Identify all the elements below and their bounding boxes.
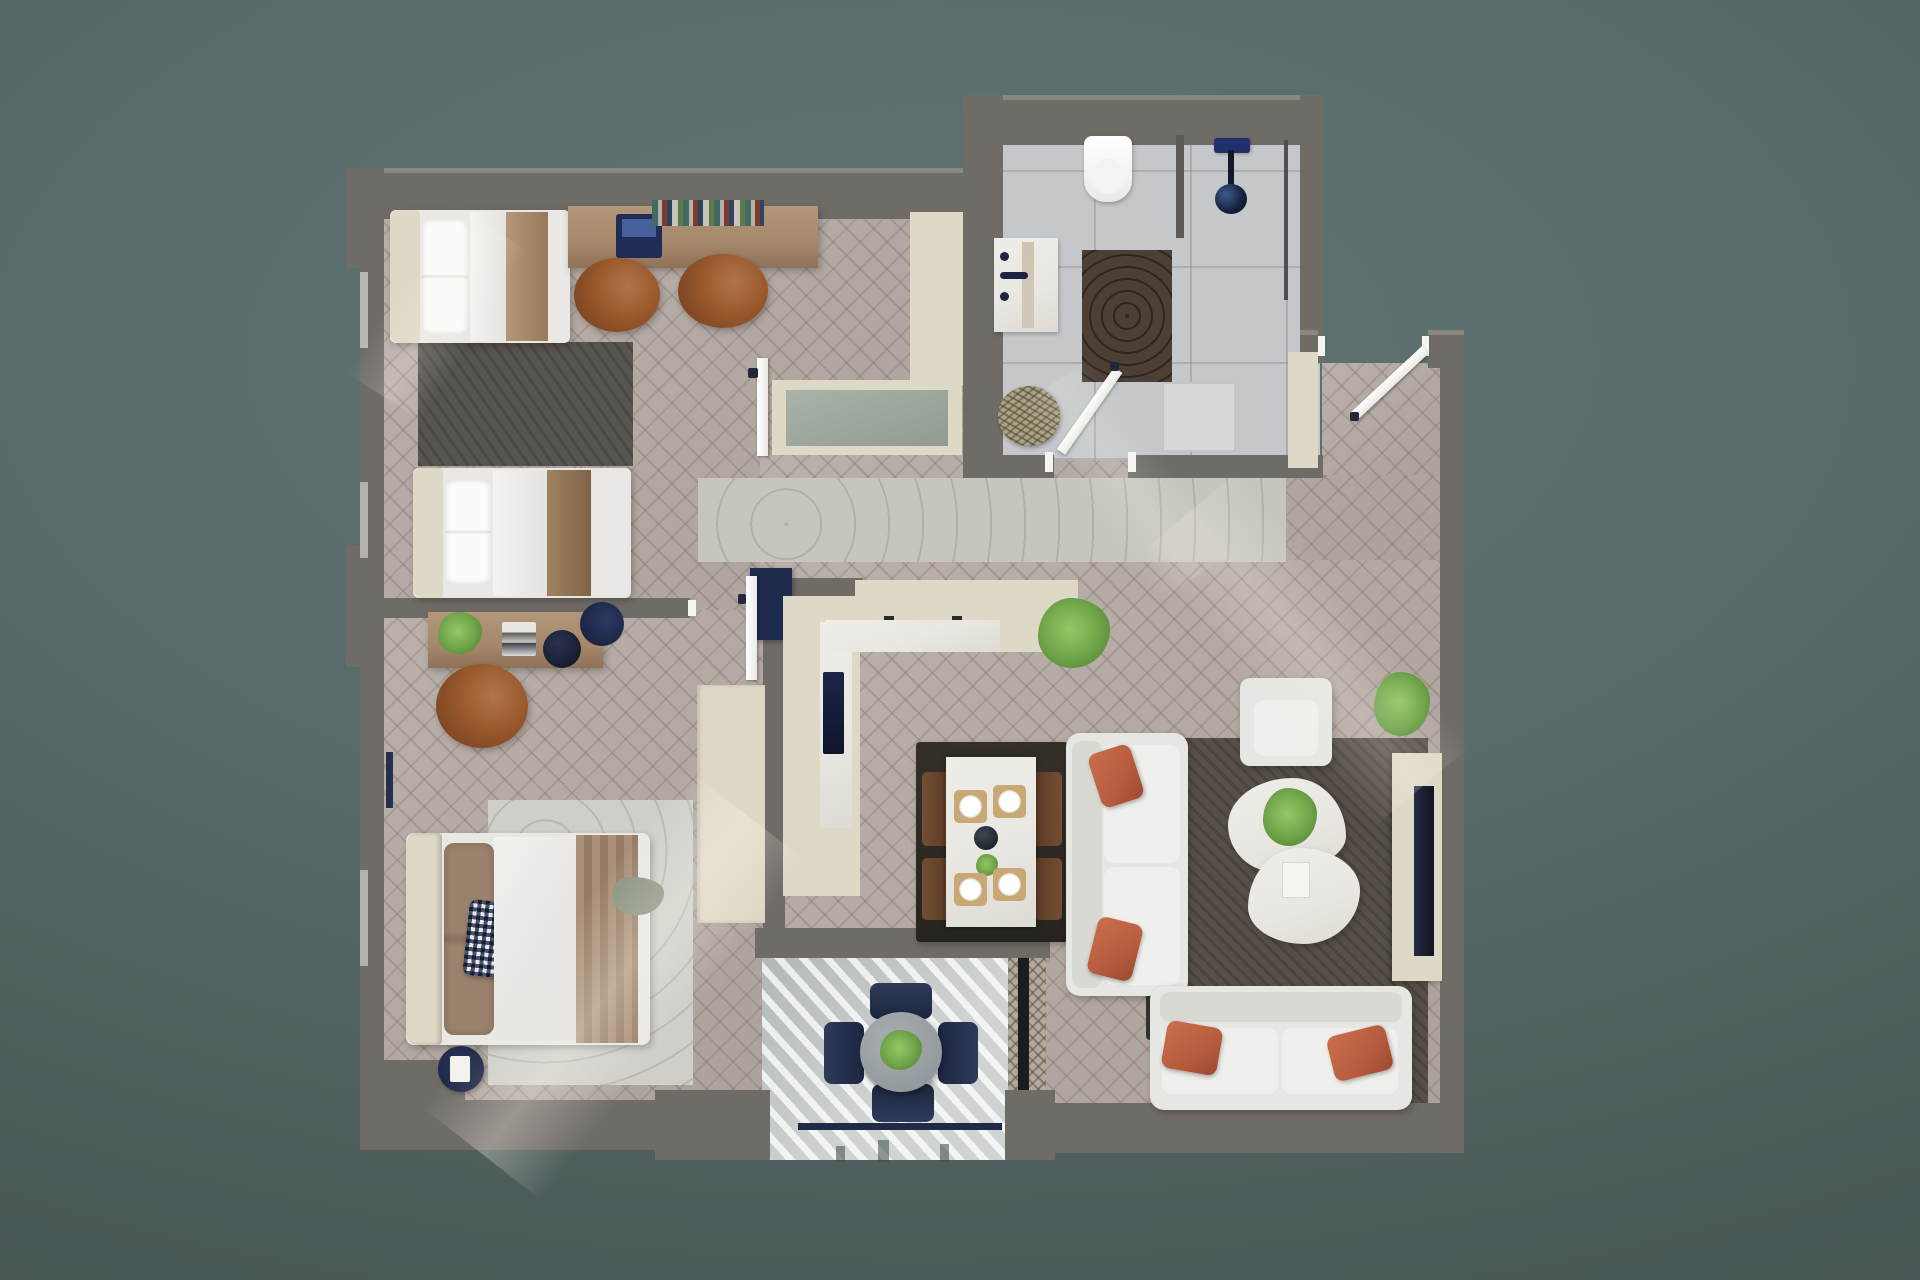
floor-entry — [1322, 363, 1442, 475]
armchair-seat — [1254, 700, 1318, 756]
tv — [1414, 786, 1434, 956]
wall-balcony-stub-left — [655, 1090, 770, 1160]
kitchen-sink — [823, 672, 844, 754]
balcony-chair-left — [824, 1022, 864, 1084]
rug-twin-bedroom — [418, 342, 633, 466]
floor-plan-render — [0, 0, 1920, 1280]
placemat-2 — [993, 785, 1026, 818]
dining-centerpiece — [974, 826, 998, 850]
counter-handle-1 — [884, 616, 894, 620]
twin-bed-2-duvet — [493, 470, 547, 596]
twin-bed-1-headboard — [390, 210, 420, 343]
kitchen-counter-top-front — [825, 620, 1000, 652]
armchair — [1240, 678, 1332, 766]
jamb-bath-right — [1128, 452, 1136, 472]
vanity-stone-streak — [1022, 242, 1034, 328]
shower-head — [1215, 184, 1247, 214]
window-left-1 — [360, 272, 368, 348]
jamb-master-door — [688, 600, 696, 616]
faucet-dot-bottom — [1000, 292, 1009, 301]
railing-shadow-3 — [940, 1144, 949, 1162]
jamb-entry-left — [1318, 336, 1325, 356]
sofa-two-back — [1160, 992, 1402, 1022]
balcony-chair-right — [938, 1022, 978, 1084]
desk-books-row — [652, 200, 764, 226]
master-bedroom-door — [746, 576, 757, 680]
table-lamp-disc — [580, 602, 624, 646]
twin-bed-2-pillows — [445, 480, 491, 584]
curtain-master-slit — [386, 752, 393, 808]
laptop-screen — [622, 219, 656, 237]
shower-arm — [1228, 150, 1234, 188]
window-left-2 — [360, 482, 368, 558]
twin-bed-2-throw — [547, 470, 591, 596]
balcony-railing — [798, 1123, 1002, 1130]
wall-bathroom-right — [1300, 95, 1324, 363]
dining-chair-right-2 — [1034, 858, 1062, 920]
railing-shadow-1 — [836, 1146, 845, 1162]
rug-hall-runner — [698, 478, 1286, 562]
placemat-3 — [954, 873, 987, 906]
twin-bed-2 — [413, 468, 631, 598]
dining-chair-right-1 — [1034, 772, 1062, 846]
wall-left-bump-top — [346, 168, 366, 268]
twin-door-handle — [748, 368, 758, 378]
master-wardrobe — [697, 685, 765, 923]
master-headboard — [406, 833, 442, 1045]
shower-glass-line — [1284, 140, 1288, 300]
table-lamp-shade — [543, 630, 581, 668]
twin-bedroom-door — [757, 358, 768, 456]
entry-cabinet — [1288, 352, 1318, 468]
master-duvet — [494, 837, 576, 1041]
twin-bed-1-pillows — [422, 219, 468, 334]
master-bed — [406, 833, 650, 1045]
twin-bed-1-duvet — [470, 212, 506, 341]
pillow-sofa2-left — [1160, 1020, 1223, 1077]
desk-chair-left — [574, 258, 660, 332]
faucet-dot-top — [1000, 252, 1009, 261]
cane-screen-bar — [1018, 958, 1029, 1094]
wall-bathroom-top — [963, 95, 1323, 145]
sideboard-magazines — [502, 622, 536, 656]
master-door-handle — [738, 594, 746, 604]
entrance-door-handle — [1350, 412, 1359, 421]
twin-bed-1-throw — [506, 212, 548, 341]
toilet-seat — [1092, 158, 1124, 194]
twin-bed-1 — [390, 210, 570, 343]
shower-tray — [1162, 382, 1236, 452]
master-throw — [576, 835, 638, 1043]
coffee-table-book — [1282, 862, 1310, 898]
master-armchair — [436, 664, 528, 748]
wall-shower-divider — [1176, 135, 1184, 238]
bench-tub-basin — [786, 390, 948, 446]
railing-shadow-2 — [878, 1140, 889, 1162]
window-left-3 — [360, 870, 368, 966]
rug-bathroom — [1082, 250, 1172, 382]
bathroom-door-handle — [1110, 362, 1119, 371]
jamb-bath-left — [1045, 452, 1053, 472]
placemat-1 — [954, 790, 987, 823]
pouf-book — [450, 1056, 470, 1082]
counter-handle-2 — [952, 616, 962, 620]
wall-bottom-right — [1048, 1103, 1464, 1153]
desk-chair-right — [678, 254, 768, 328]
wall-right — [1440, 363, 1464, 1153]
faucet-spout — [1000, 272, 1028, 279]
woven-basket — [998, 386, 1060, 446]
twin-bed-2-headboard — [413, 468, 443, 598]
bench-tub-column — [910, 212, 963, 385]
placemat-4 — [993, 868, 1026, 901]
